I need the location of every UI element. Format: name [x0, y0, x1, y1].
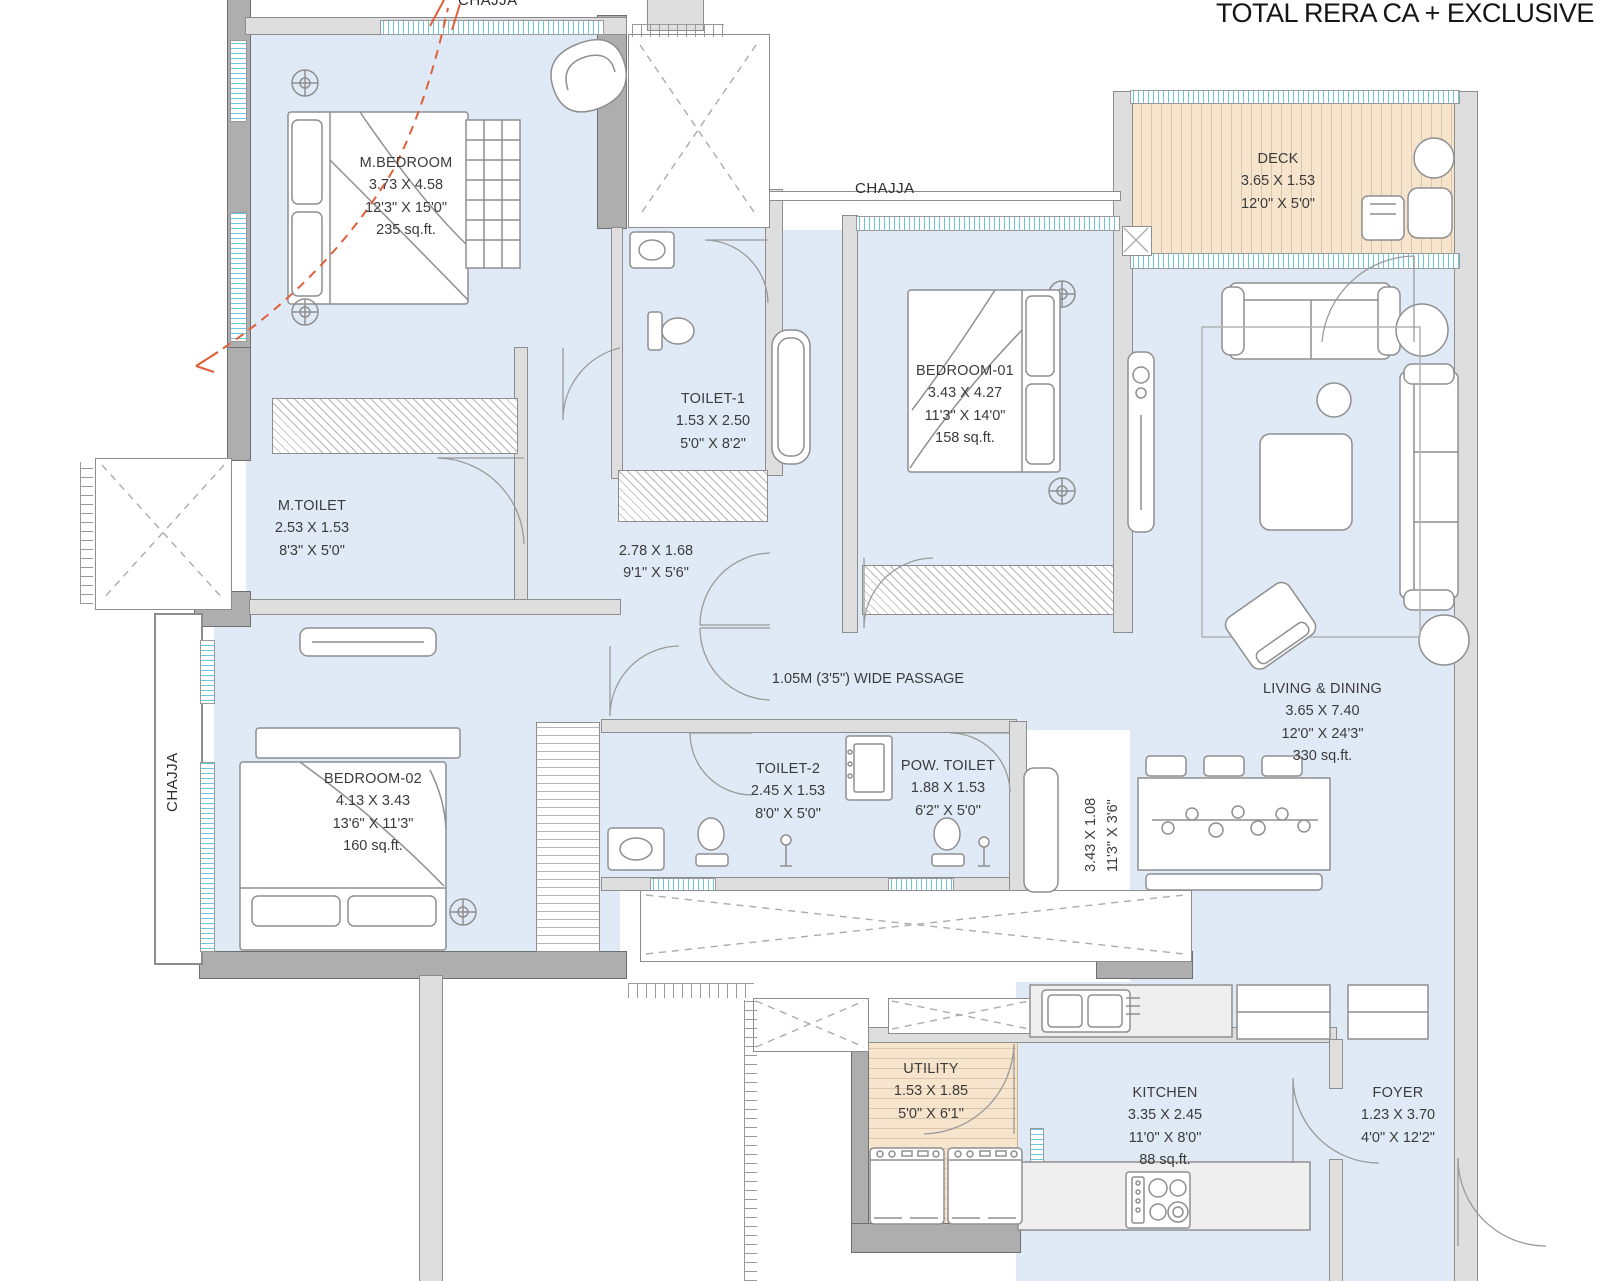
room-name: BEDROOM-01: [858, 360, 1072, 382]
wc-pow-toilet: [932, 818, 990, 866]
dim-ft: 9'1" X 5'6": [560, 562, 752, 584]
sofa-three-seat: [1400, 364, 1458, 610]
room-dim-m: 4.13 X 3.43: [265, 790, 481, 812]
room-name: LIVING & DINING: [1215, 678, 1430, 700]
kitchen-hob-counter: [1018, 1162, 1310, 1230]
room-area: 160 sq.ft.: [265, 835, 481, 857]
room-name: UTILITY: [855, 1058, 1007, 1080]
washer-dryer: [870, 1148, 1022, 1224]
room-dim-ft: 11'0" X 8'0": [1062, 1127, 1268, 1149]
room-dim-m: 3.65 X 7.40: [1215, 700, 1430, 722]
room-dim-ft: 6'2" X 5'0": [845, 800, 1051, 822]
room-name: POW. TOILET: [845, 755, 1051, 777]
room-label-deck: DECK 3.65 X 1.53 12'0" X 5'0": [1178, 148, 1378, 215]
room-name: DECK: [1178, 148, 1378, 170]
room-label-m-bedroom: M.BEDROOM 3.73 X 4.58 12'3" X 15'0" 235 …: [300, 152, 512, 242]
room-area: 158 sq.ft.: [858, 427, 1072, 449]
room-name: FOYER: [1318, 1082, 1478, 1104]
foyer-cabinet: [1348, 985, 1428, 1039]
room-dim-ft: 11'3" X 14'0": [858, 405, 1072, 427]
room-name: TOILET-1: [620, 388, 806, 410]
room-label-bedroom-02: BEDROOM-02 4.13 X 3.43 13'6" X 11'3" 160…: [265, 768, 481, 858]
room-dim-ft: 12'0" X 5'0": [1178, 193, 1378, 215]
room-dim-m: 2.53 X 1.53: [212, 517, 412, 539]
sink-toilet-2: [608, 828, 664, 870]
fridge: [1237, 985, 1330, 1039]
chajja-label-top-left: CHAJJA: [458, 0, 518, 9]
chajja-label-top-center: CHAJJA: [855, 180, 915, 197]
room-area: 235 sq.ft.: [300, 219, 512, 241]
dim-m: 3.43 X 1.08: [1080, 752, 1102, 872]
room-dim-ft: 4'0" X 12'2": [1318, 1127, 1478, 1149]
chajja-label-left: CHAJJA: [164, 752, 181, 812]
room-name: KITCHEN: [1062, 1082, 1268, 1104]
sideboard-passage: [300, 628, 436, 656]
passage-note: 1.05M (3'5") WIDE PASSAGE: [740, 668, 996, 690]
tv-unit: [1128, 352, 1154, 532]
room-dim-m: 3.35 X 2.45: [1062, 1104, 1268, 1126]
floor-plan: TOTAL RERA CA + EXCLUSIVE CA CHAJJA CHAJ…: [0, 0, 1600, 1281]
room-dim-ft: 5'0" X 8'2": [620, 433, 806, 455]
room-area: 88 sq.ft.: [1062, 1149, 1268, 1171]
label-dining-nook: 3.43 X 1.08 11'3" X 3'6": [1080, 752, 1125, 872]
room-label-kitchen: KITCHEN 3.35 X 2.45 11'0" X 8'0" 88 sq.f…: [1062, 1082, 1268, 1172]
dim-ft: 11'3" X 3'6": [1102, 752, 1124, 872]
room-label-bedroom-01: BEDROOM-01 3.43 X 4.27 11'3" X 14'0" 158…: [858, 360, 1072, 450]
room-dim-ft: 12'0" X 24'3": [1215, 723, 1430, 745]
room-dim-m: 1.23 X 3.70: [1318, 1104, 1478, 1126]
room-label-living-dining: LIVING & DINING 3.65 X 7.40 12'0" X 24'3…: [1215, 678, 1430, 768]
label-passage: 1.05M (3'5") WIDE PASSAGE: [740, 668, 996, 690]
room-label-toilet-1: TOILET-1 1.53 X 2.50 5'0" X 8'2": [620, 388, 806, 455]
room-label-utility: UTILITY 1.53 X 1.85 5'0" X 6'1": [855, 1058, 1007, 1125]
room-dim-m: 3.73 X 4.58: [300, 174, 512, 196]
dim-m: 2.78 X 1.68: [560, 540, 752, 562]
plan-title: TOTAL RERA CA + EXCLUSIVE CA: [1216, 0, 1600, 29]
room-dim-ft: 8'3" X 5'0": [212, 540, 412, 562]
room-area: 330 sq.ft.: [1215, 745, 1430, 767]
armchair-living: [1222, 579, 1320, 673]
room-dim-m: 1.53 X 1.85: [855, 1080, 1007, 1102]
room-dim-m: 1.53 X 2.50: [620, 410, 806, 432]
room-dim-ft: 12'3" X 15'0": [300, 197, 512, 219]
armchair-m-bedroom: [551, 40, 626, 112]
label-inner-passage: 2.78 X 1.68 9'1" X 5'6": [560, 540, 752, 585]
wc-toilet-1: [648, 312, 694, 350]
room-dim-m: 3.43 X 4.27: [858, 382, 1072, 404]
room-dim-m: 1.88 X 1.53: [845, 777, 1051, 799]
room-label-m-toilet: M.TOILET 2.53 X 1.53 8'3" X 5'0": [212, 495, 412, 562]
kitchen-sink-counter: [1030, 985, 1232, 1037]
room-name: M.BEDROOM: [300, 152, 512, 174]
room-dim-m: 3.65 X 1.53: [1178, 170, 1378, 192]
sofa-two-seat: [1222, 283, 1400, 359]
coffee-table: [1260, 434, 1352, 530]
sink-toilet-1: [630, 232, 674, 268]
room-label-foyer: FOYER 1.23 X 3.70 4'0" X 12'2": [1318, 1082, 1478, 1149]
room-label-pow-toilet: POW. TOILET 1.88 X 1.53 6'2" X 5'0": [845, 755, 1051, 822]
room-name: M.TOILET: [212, 495, 412, 517]
room-name: BEDROOM-02: [265, 768, 481, 790]
room-dim-ft: 13'6" X 11'3": [265, 813, 481, 835]
dining-set: [1138, 756, 1330, 890]
room-dim-ft: 5'0" X 6'1": [855, 1103, 1007, 1125]
